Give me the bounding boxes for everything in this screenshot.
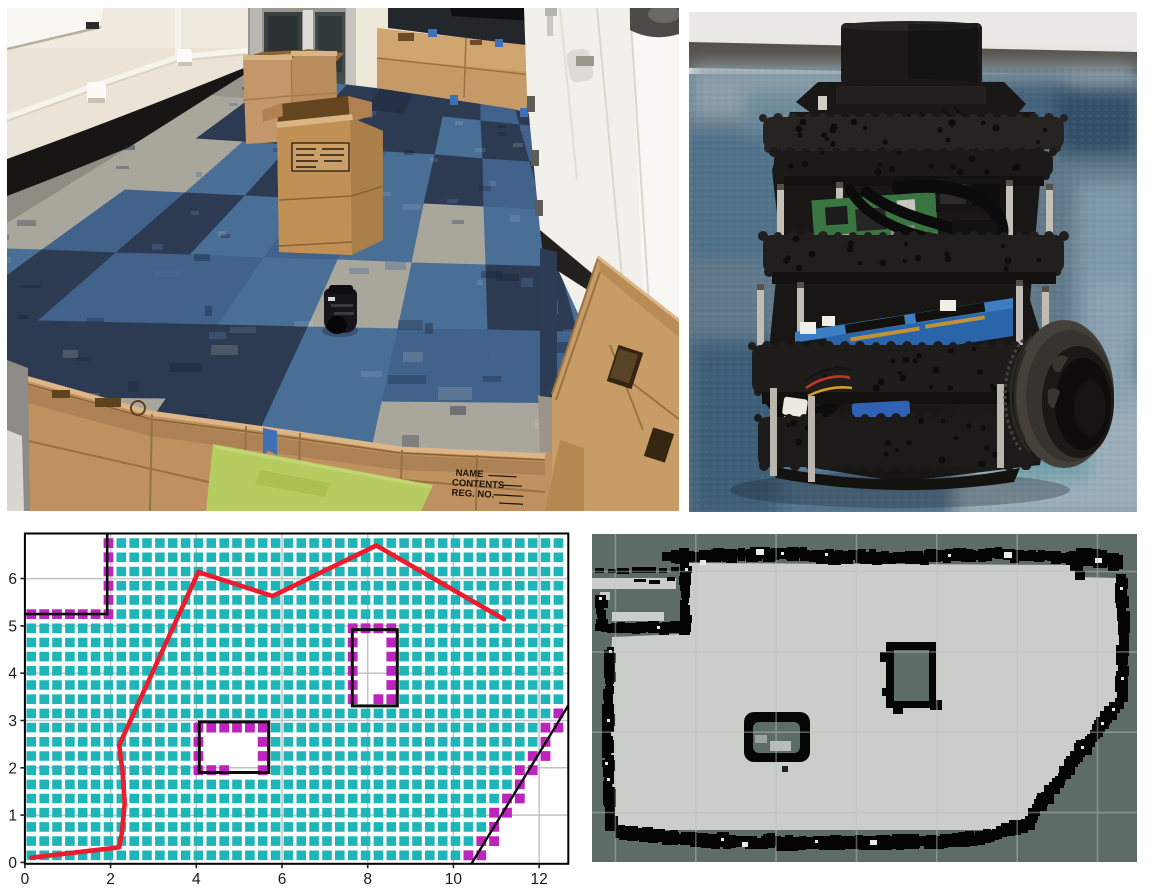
svg-text:12: 12 bbox=[530, 871, 547, 888]
svg-text:4: 4 bbox=[8, 666, 17, 683]
svg-text:3: 3 bbox=[8, 713, 17, 730]
svg-text:5: 5 bbox=[8, 618, 17, 635]
svg-text:0: 0 bbox=[8, 855, 17, 872]
svg-text:0: 0 bbox=[21, 871, 30, 888]
svg-text:8: 8 bbox=[363, 871, 372, 888]
svg-text:4: 4 bbox=[192, 871, 201, 888]
svg-text:REG. NO.: REG. NO. bbox=[451, 488, 494, 501]
svg-text:1: 1 bbox=[8, 808, 17, 825]
svg-text:10: 10 bbox=[445, 871, 463, 888]
svg-text:6: 6 bbox=[8, 571, 17, 588]
svg-text:2: 2 bbox=[8, 760, 17, 777]
svg-text:6: 6 bbox=[278, 871, 287, 888]
svg-text:2: 2 bbox=[106, 871, 115, 888]
